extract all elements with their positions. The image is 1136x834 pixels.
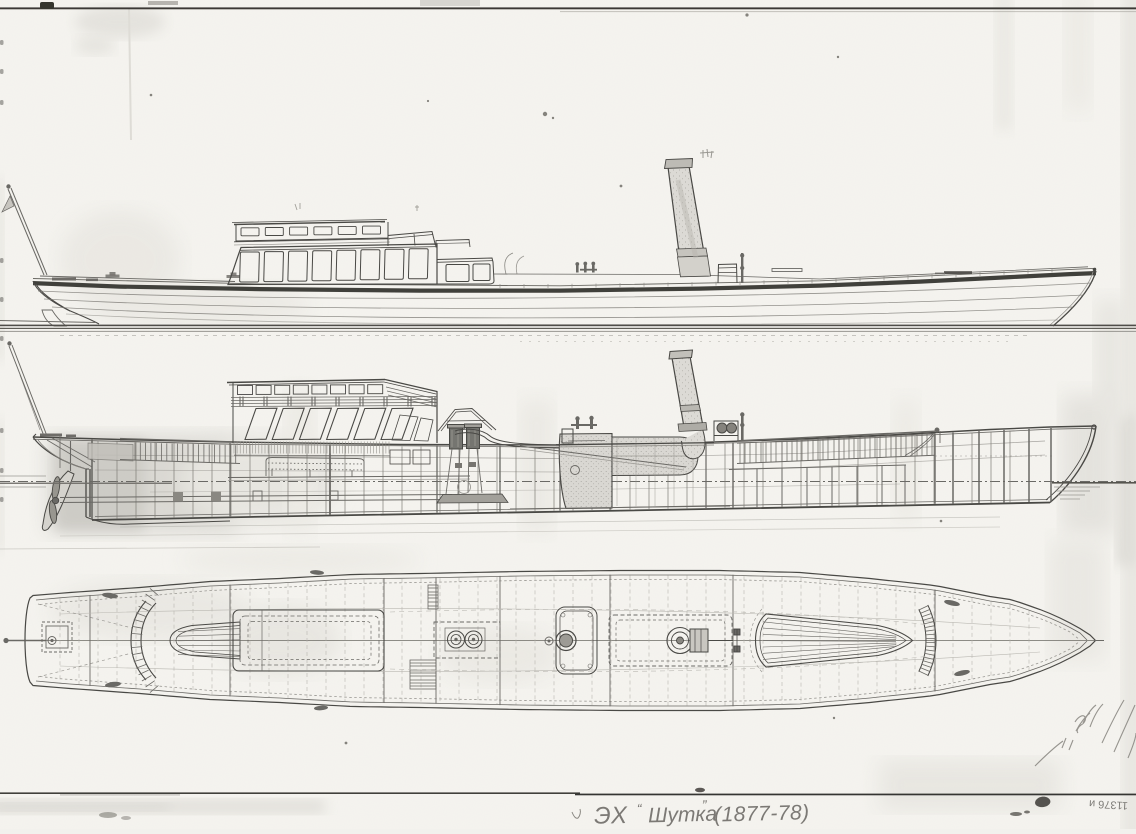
svg-text:ЭХ: ЭХ bbox=[594, 802, 629, 829]
svg-text:(1877-78): (1877-78) bbox=[714, 801, 810, 826]
svg-text:Шутка: Шутка bbox=[648, 803, 718, 828]
svg-text:11376 и: 11376 и bbox=[1089, 797, 1129, 811]
